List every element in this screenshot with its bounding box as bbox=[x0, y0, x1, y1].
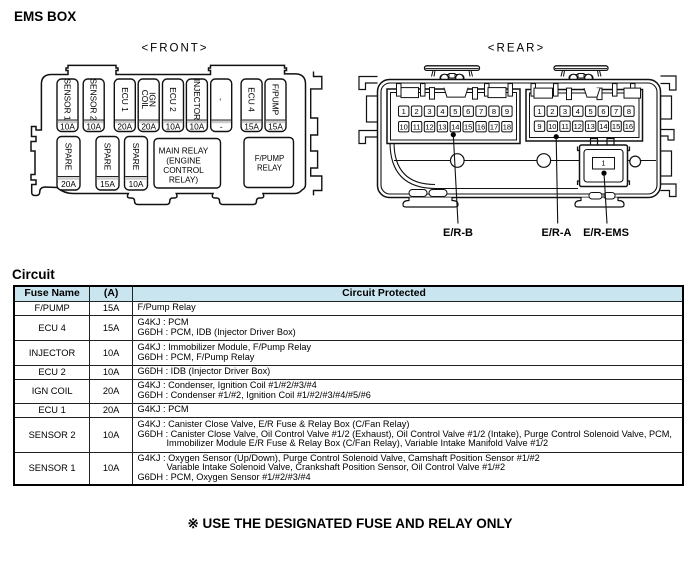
svg-text:5: 5 bbox=[453, 107, 457, 116]
svg-text:SPARE: SPARE bbox=[103, 143, 113, 171]
svg-text:8: 8 bbox=[492, 107, 496, 116]
svg-text:14: 14 bbox=[451, 123, 459, 132]
svg-text:8: 8 bbox=[627, 107, 631, 116]
svg-text:10A: 10A bbox=[86, 121, 101, 131]
svg-text:MAIN RELAY: MAIN RELAY bbox=[159, 146, 209, 156]
svg-text:ECU 1: ECU 1 bbox=[120, 87, 130, 112]
svg-text:CONTROL: CONTROL bbox=[163, 165, 204, 175]
svg-text:6: 6 bbox=[601, 107, 605, 116]
svg-text:E/R-B: E/R-B bbox=[443, 227, 473, 239]
svg-text:10A: 10A bbox=[129, 179, 144, 189]
svg-text:12: 12 bbox=[425, 123, 433, 132]
svg-text:10A: 10A bbox=[166, 121, 181, 131]
svg-text:4: 4 bbox=[576, 107, 580, 116]
svg-text:F/PUMP: F/PUMP bbox=[255, 154, 284, 163]
svg-text:13: 13 bbox=[438, 123, 446, 132]
svg-text:16: 16 bbox=[477, 123, 485, 132]
svg-text:7: 7 bbox=[479, 107, 483, 116]
svg-text:10A: 10A bbox=[60, 121, 75, 131]
svg-text:15A: 15A bbox=[244, 121, 259, 131]
svg-text:12: 12 bbox=[574, 122, 582, 131]
svg-text:10A: 10A bbox=[190, 121, 205, 131]
svg-text:3: 3 bbox=[563, 107, 567, 116]
svg-text:<REAR>: <REAR> bbox=[488, 43, 545, 55]
svg-text:5: 5 bbox=[589, 107, 593, 116]
svg-text:6: 6 bbox=[466, 107, 470, 116]
svg-text:11: 11 bbox=[561, 122, 569, 131]
svg-text:15: 15 bbox=[464, 123, 472, 132]
svg-text:3: 3 bbox=[427, 107, 431, 116]
svg-text:15: 15 bbox=[612, 122, 620, 131]
svg-text:E/R-EMS: E/R-EMS bbox=[583, 227, 629, 239]
svg-text:SENSOR 1: SENSOR 1 bbox=[63, 79, 73, 121]
svg-text:15A: 15A bbox=[268, 121, 283, 131]
svg-text:9: 9 bbox=[537, 122, 541, 131]
svg-text:ECU 2: ECU 2 bbox=[168, 87, 178, 112]
svg-text:20A: 20A bbox=[141, 121, 156, 131]
svg-text:15A: 15A bbox=[100, 179, 115, 189]
svg-text:F/PUMP: F/PUMP bbox=[271, 84, 281, 116]
svg-text:10: 10 bbox=[400, 123, 408, 132]
svg-text:<FRONT>: <FRONT> bbox=[141, 43, 208, 55]
svg-text:2: 2 bbox=[550, 107, 554, 116]
svg-text:(ENGINE: (ENGINE bbox=[166, 155, 201, 165]
svg-text:ECU 4: ECU 4 bbox=[247, 87, 257, 112]
svg-text:11: 11 bbox=[413, 123, 421, 132]
svg-text:14: 14 bbox=[599, 122, 607, 131]
svg-text:13: 13 bbox=[586, 122, 594, 131]
svg-text:9: 9 bbox=[505, 107, 509, 116]
svg-text:7: 7 bbox=[614, 107, 618, 116]
svg-text:17: 17 bbox=[490, 123, 498, 132]
svg-text:E/R-A: E/R-A bbox=[542, 227, 572, 239]
svg-text:1: 1 bbox=[537, 107, 541, 116]
svg-text:INJECTOR: INJECTOR bbox=[192, 79, 202, 120]
svg-text:1: 1 bbox=[402, 107, 406, 116]
svg-text:RELAY): RELAY) bbox=[169, 175, 199, 185]
svg-text:SPARE: SPARE bbox=[64, 143, 74, 171]
svg-text:20A: 20A bbox=[117, 121, 132, 131]
svg-text:-: - bbox=[220, 121, 223, 131]
svg-text:2: 2 bbox=[415, 107, 419, 116]
svg-text:18: 18 bbox=[503, 123, 511, 132]
svg-text:1: 1 bbox=[601, 159, 605, 168]
svg-text:4: 4 bbox=[440, 107, 444, 116]
svg-text:COIL: COIL bbox=[140, 90, 150, 110]
svg-text:10: 10 bbox=[548, 122, 556, 131]
svg-text:SPARE: SPARE bbox=[131, 143, 141, 171]
svg-text:SENSOR 2: SENSOR 2 bbox=[89, 79, 99, 121]
svg-text:-: - bbox=[216, 98, 226, 101]
svg-text:16: 16 bbox=[625, 122, 633, 131]
svg-text:20A: 20A bbox=[61, 179, 76, 189]
svg-text:RELAY: RELAY bbox=[257, 163, 283, 172]
